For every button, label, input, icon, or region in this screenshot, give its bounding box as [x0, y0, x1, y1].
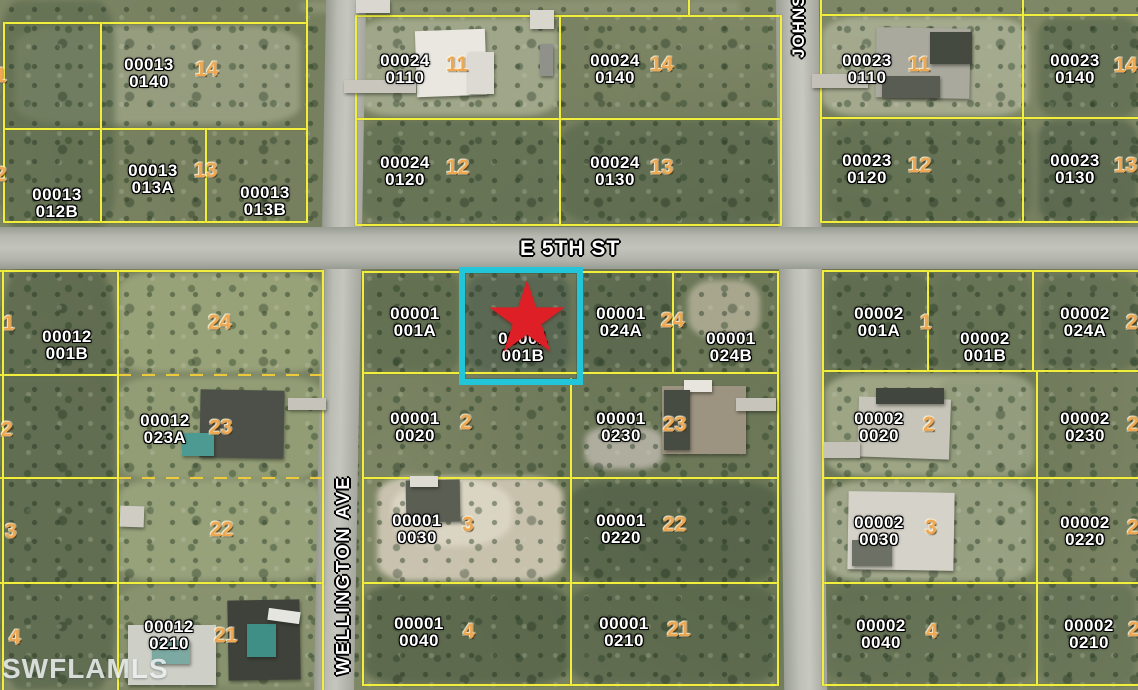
- lot-number-label: 2: [1, 420, 13, 440]
- parcel-lot-number: 0040: [388, 632, 450, 649]
- street-label-wellington-ave: WELLINGTON AVE: [332, 455, 354, 675]
- lot-number-label: 22: [663, 515, 686, 535]
- parcel-boundary-line: [822, 270, 824, 686]
- lot-number-label: 2: [460, 413, 472, 433]
- lot-number-label: 21: [667, 620, 690, 640]
- parcel-boundary-line: [0, 374, 118, 376]
- parcel-label: 00001 0210: [593, 615, 655, 649]
- parcel-boundary-line: [118, 477, 324, 479]
- parcel-boundary-line: [3, 22, 308, 24]
- parcel-boundary-line: [118, 374, 324, 376]
- parcel-boundary-line: [3, 221, 308, 223]
- parcel-boundary-line: [355, 118, 782, 120]
- parcel-boundary-line: [0, 270, 324, 272]
- parcel-block-number: 00024: [584, 52, 646, 69]
- parcel-boundary-line: [3, 22, 5, 222]
- parcel-lot-number: 0040: [850, 634, 912, 651]
- parcel-label: 00001 024A: [590, 305, 652, 339]
- parcel-block-number: 00001: [700, 330, 762, 347]
- lot-number-label: 13: [650, 158, 673, 178]
- structure: [540, 44, 553, 76]
- parcel-boundary-line: [559, 15, 561, 225]
- structure: [247, 624, 276, 657]
- lot-number-label: 11: [446, 55, 468, 75]
- parcel-boundary-line: [820, 0, 822, 222]
- structure: [930, 32, 972, 64]
- parcel-block-number: 00002: [1054, 305, 1116, 322]
- parcel-boundary-line: [1032, 271, 1034, 371]
- lot-number-label: 14: [1114, 56, 1137, 76]
- parcel-label: 00024 0130: [584, 154, 646, 188]
- parcel-block-number: 00001: [590, 512, 652, 529]
- parcel-boundary-line: [822, 684, 1138, 686]
- parcel-label: 00002 0030: [848, 514, 910, 548]
- parcel-lot-number: 0020: [384, 427, 446, 444]
- lot-number-label: 1: [3, 314, 15, 334]
- lot-number-label: 13: [1114, 156, 1137, 176]
- parcel-block-number: 00013: [122, 162, 184, 179]
- parcel-lot-number: 0210: [593, 632, 655, 649]
- parcel-label: 00001 001A: [384, 305, 446, 339]
- parcel-lot-number: 012B: [26, 203, 88, 220]
- parcel-lot-number: 0130: [1044, 169, 1106, 186]
- parcel-boundary-line: [822, 582, 1138, 584]
- parcel-lot-number: 0110: [374, 69, 436, 86]
- parcel-label: 00024 0120: [374, 154, 436, 188]
- parcel-boundary-line: [820, 117, 1138, 119]
- parcel-block-number: 00002: [850, 617, 912, 634]
- structure: [120, 506, 145, 528]
- lot-number-label: 11: [908, 55, 930, 75]
- lot-number-label: 12: [908, 156, 931, 176]
- lot-number-label: 13: [194, 161, 217, 181]
- parcel-lot-number: 0230: [1054, 427, 1116, 444]
- lot-number-label: 3: [5, 522, 17, 542]
- parcel-block-number: 00001: [386, 512, 448, 529]
- lot-number-label: 3: [462, 515, 474, 535]
- parcel-boundary-line: [3, 128, 308, 130]
- parcel-lot-number: 0120: [374, 171, 436, 188]
- parcel-label: 00001 0040: [388, 615, 450, 649]
- lot-number-label: 2: [0, 165, 7, 185]
- parcel-lot-number: 0030: [848, 531, 910, 548]
- parcel-boundary-line: [322, 270, 324, 690]
- parcel-block-number: 00023: [836, 152, 898, 169]
- parcel-label: 00023 0140: [1044, 52, 1106, 86]
- parcel-block-number: 00013: [118, 56, 180, 73]
- parcel-block-number: 00024: [584, 154, 646, 171]
- lot-number-label: 22: [210, 520, 233, 540]
- parcel-lot-number: 0210: [138, 635, 200, 652]
- mls-watermark: SWFLAMLS: [2, 653, 169, 685]
- parcel-block-number: 00023: [1044, 152, 1106, 169]
- lot-number-label: 4: [9, 628, 21, 648]
- lot-number-label: 12: [446, 158, 469, 178]
- structure: [530, 10, 554, 29]
- parcel-boundary-line: [822, 370, 1138, 372]
- parcel-label: 00002 001A: [848, 305, 910, 339]
- parcel-lot-number: 0130: [584, 171, 646, 188]
- structure: [468, 52, 494, 94]
- parcel-lot-number: 013B: [234, 201, 296, 218]
- parcel-block-number: 00023: [1044, 52, 1106, 69]
- parcel-block-number: 00002: [954, 330, 1016, 347]
- structure: [288, 398, 326, 410]
- structure: [824, 442, 860, 458]
- parcel-block-number: 00024: [374, 154, 436, 171]
- parcel-block-number: 00001: [590, 305, 652, 322]
- parcel-label: 00013 0140: [118, 56, 180, 90]
- parcel-block-number: 00002: [1054, 410, 1116, 427]
- lot-number-label: 22: [1127, 518, 1138, 538]
- parcel-boundary-line: [100, 22, 102, 222]
- structure: [736, 398, 776, 411]
- parcel-label: 00013 013A: [122, 162, 184, 196]
- street-label-e-5th-st: E 5TH ST: [520, 237, 620, 261]
- parcel-boundary-line: [780, 15, 782, 225]
- parcel-block-number: 00024: [374, 52, 436, 69]
- parcel-lot-number: 013A: [122, 179, 184, 196]
- parcel-lot-number: 0020: [848, 427, 910, 444]
- parcel-lot-number: 0110: [836, 69, 898, 86]
- parcel-label: 00013 013B: [234, 184, 296, 218]
- parcel-label: 00002 0040: [850, 617, 912, 651]
- parcel-block-number: 00013: [234, 184, 296, 201]
- lot-number-label: 3: [925, 518, 937, 538]
- parcel-lot-number: 0230: [590, 427, 652, 444]
- parcel-boundary-line: [1022, 0, 1024, 222]
- parcel-map: E 5TH ST WELLINGTON AVE JOHNS 00013 0140…: [0, 0, 1138, 690]
- parcel-label: 00001 0030: [386, 512, 448, 546]
- parcel-lot-number: 0120: [836, 169, 898, 186]
- parcel-boundary-line: [117, 270, 119, 690]
- parcel-block-number: 00001: [384, 305, 446, 322]
- lot-number-label: 14: [650, 55, 673, 75]
- parcel-boundary-line: [362, 271, 364, 686]
- parcel-label: 00024 0110: [374, 52, 436, 86]
- parcel-lot-number: 024A: [590, 322, 652, 339]
- parcel-lot-number: 0140: [118, 73, 180, 90]
- parcel-lot-number: 001A: [848, 322, 910, 339]
- parcel-block-number: 00001: [384, 410, 446, 427]
- parcel-label: 00012 001B: [36, 328, 98, 362]
- parcel-lot-number: 024A: [1054, 322, 1116, 339]
- lot-number-label: 21: [1128, 620, 1138, 640]
- parcel-lot-number: 0220: [1054, 531, 1116, 548]
- parcel-label: 00023 0110: [836, 52, 898, 86]
- parcel-label: 00002 0210: [1058, 617, 1120, 651]
- parcel-boundary-line: [0, 582, 324, 584]
- parcel-block-number: 00012: [36, 328, 98, 345]
- structure: [876, 388, 944, 404]
- lot-number-label: 24: [661, 311, 684, 331]
- parcel-label: 00001 0230: [590, 410, 652, 444]
- parcel-lot-number: 0030: [386, 529, 448, 546]
- parcel-lot-number: 001B: [36, 345, 98, 362]
- parcel-label: 00002 0220: [1054, 514, 1116, 548]
- lot-number-label: 1: [0, 66, 7, 86]
- parcel-label: 00002 0020: [848, 410, 910, 444]
- parcel-boundary-line: [0, 477, 118, 479]
- structure: [410, 476, 438, 487]
- lot-number-label: 21: [214, 626, 237, 646]
- parcel-boundary-line: [777, 271, 779, 686]
- parcel-block-number: 00013: [26, 186, 88, 203]
- parcel-block-number: 00012: [134, 412, 196, 429]
- lot-number-label: 23: [663, 415, 686, 435]
- parcel-lot-number: 0210: [1058, 634, 1120, 651]
- parcel-lot-number: 001B: [954, 347, 1016, 364]
- parcel-lot-number: 0220: [590, 529, 652, 546]
- parcel-label: 00001 0220: [590, 512, 652, 546]
- parcel-block-number: 00002: [848, 514, 910, 531]
- lot-number-label: 4: [463, 622, 475, 642]
- parcel-block-number: 00002: [1054, 514, 1116, 531]
- terrain-patch: [938, 377, 1034, 477]
- parcel-block-number: 00023: [836, 52, 898, 69]
- parcel-label: 00001 024B: [700, 330, 762, 364]
- structure: [356, 0, 390, 13]
- parcel-boundary-line: [820, 221, 1138, 223]
- parcel-boundary-line: [306, 0, 308, 222]
- parcel-lot-number: 024B: [700, 347, 762, 364]
- star-marker-icon: ★: [477, 266, 577, 366]
- parcel-boundary-line: [355, 15, 357, 225]
- parcel-label: 00023 0120: [836, 152, 898, 186]
- parcel-boundary-line: [570, 378, 572, 686]
- lot-number-label: 1: [920, 313, 932, 333]
- parcel-label: 00023 0130: [1044, 152, 1106, 186]
- lot-number-label: 2: [923, 415, 935, 435]
- parcel-boundary-line: [822, 477, 1138, 479]
- parcel-block-number: 00002: [848, 410, 910, 427]
- street-label-johns: JOHNS: [789, 0, 809, 58]
- parcel-label: 00013 012B: [26, 186, 88, 220]
- parcel-boundary-line: [822, 270, 1138, 272]
- parcel-boundary-line: [355, 224, 782, 226]
- parcel-label: 00002 0230: [1054, 410, 1116, 444]
- parcel-lot-number: 0140: [584, 69, 646, 86]
- lot-number-label: 24: [1126, 313, 1138, 333]
- parcel-block-number: 00001: [593, 615, 655, 632]
- parcel-block-number: 00001: [388, 615, 450, 632]
- lot-number-label: 23: [209, 418, 232, 438]
- parcel-lot-number: 001A: [384, 322, 446, 339]
- parcel-boundary-line: [1036, 371, 1038, 686]
- parcel-label: 00002 001B: [954, 330, 1016, 364]
- parcel-label: 00012 023A: [134, 412, 196, 446]
- parcel-lot-number: 0140: [1044, 69, 1106, 86]
- parcel-block-number: 00002: [1058, 617, 1120, 634]
- parcel-lot-number: 023A: [134, 429, 196, 446]
- parcel-block-number: 00002: [848, 305, 910, 322]
- parcel-boundary-line: [820, 14, 1138, 16]
- parcel-boundary-line: [688, 0, 690, 15]
- parcel-boundary-line: [355, 15, 782, 17]
- parcel-block-number: 00012: [138, 618, 200, 635]
- parcel-label: 00002 024A: [1054, 305, 1116, 339]
- parcel-block-number: 00001: [590, 410, 652, 427]
- parcel-label: 00024 0140: [584, 52, 646, 86]
- lot-number-label: 14: [195, 60, 218, 80]
- parcel-label: 00001 0020: [384, 410, 446, 444]
- lot-number-label: 24: [208, 313, 231, 333]
- lot-number-label: 4: [926, 622, 938, 642]
- lot-number-label: 23: [1127, 415, 1138, 435]
- parcel-label: 00012 0210: [138, 618, 200, 652]
